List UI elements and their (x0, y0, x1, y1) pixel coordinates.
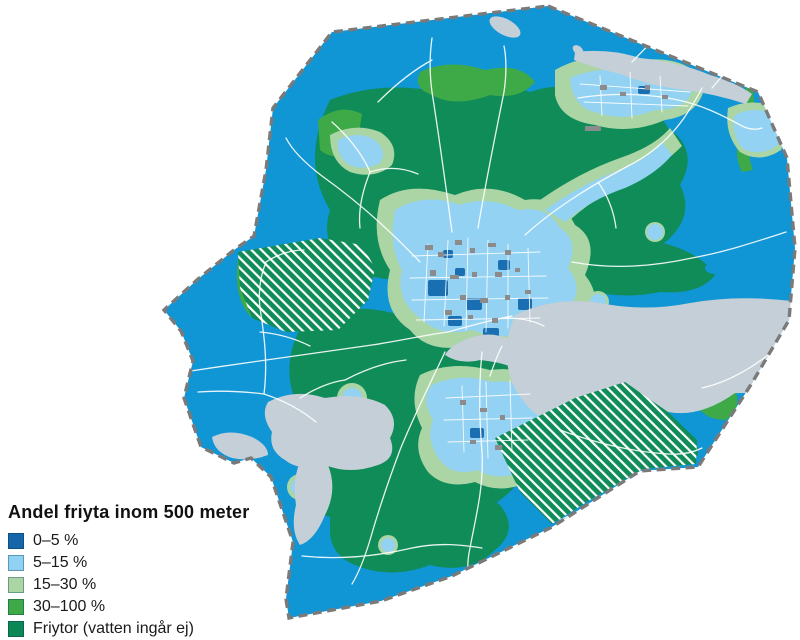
legend-label: 15–30 % (33, 576, 96, 594)
legend-swatch-friytor (8, 621, 24, 637)
legend-swatch-0-5 (8, 533, 24, 549)
legend-item-friytor: Friytor (vatten ingår ej) (8, 618, 249, 640)
legend-item-15-30: 15–30 % (8, 574, 249, 596)
legend-label: 0–5 % (33, 532, 78, 550)
map-figure: Andel friyta inom 500 meter 0–5 % 5–15 %… (0, 0, 800, 640)
legend-item-5-15: 5–15 % (8, 552, 249, 574)
legend-item-30-100: 30–100 % (8, 596, 249, 618)
legend-label: Friytor (vatten ingår ej) (33, 620, 194, 638)
legend-swatch-30-100 (8, 599, 24, 615)
legend-label: 30–100 % (33, 598, 105, 616)
legend-title: Andel friyta inom 500 meter (8, 502, 249, 523)
legend-swatch-15-30 (8, 577, 24, 593)
lake-islet-pond (705, 262, 725, 274)
legend-label: 5–15 % (33, 554, 87, 572)
legend-item-0-5: 0–5 % (8, 530, 249, 552)
legend: Andel friyta inom 500 meter 0–5 % 5–15 %… (8, 502, 249, 640)
legend-swatch-5-15 (8, 555, 24, 571)
